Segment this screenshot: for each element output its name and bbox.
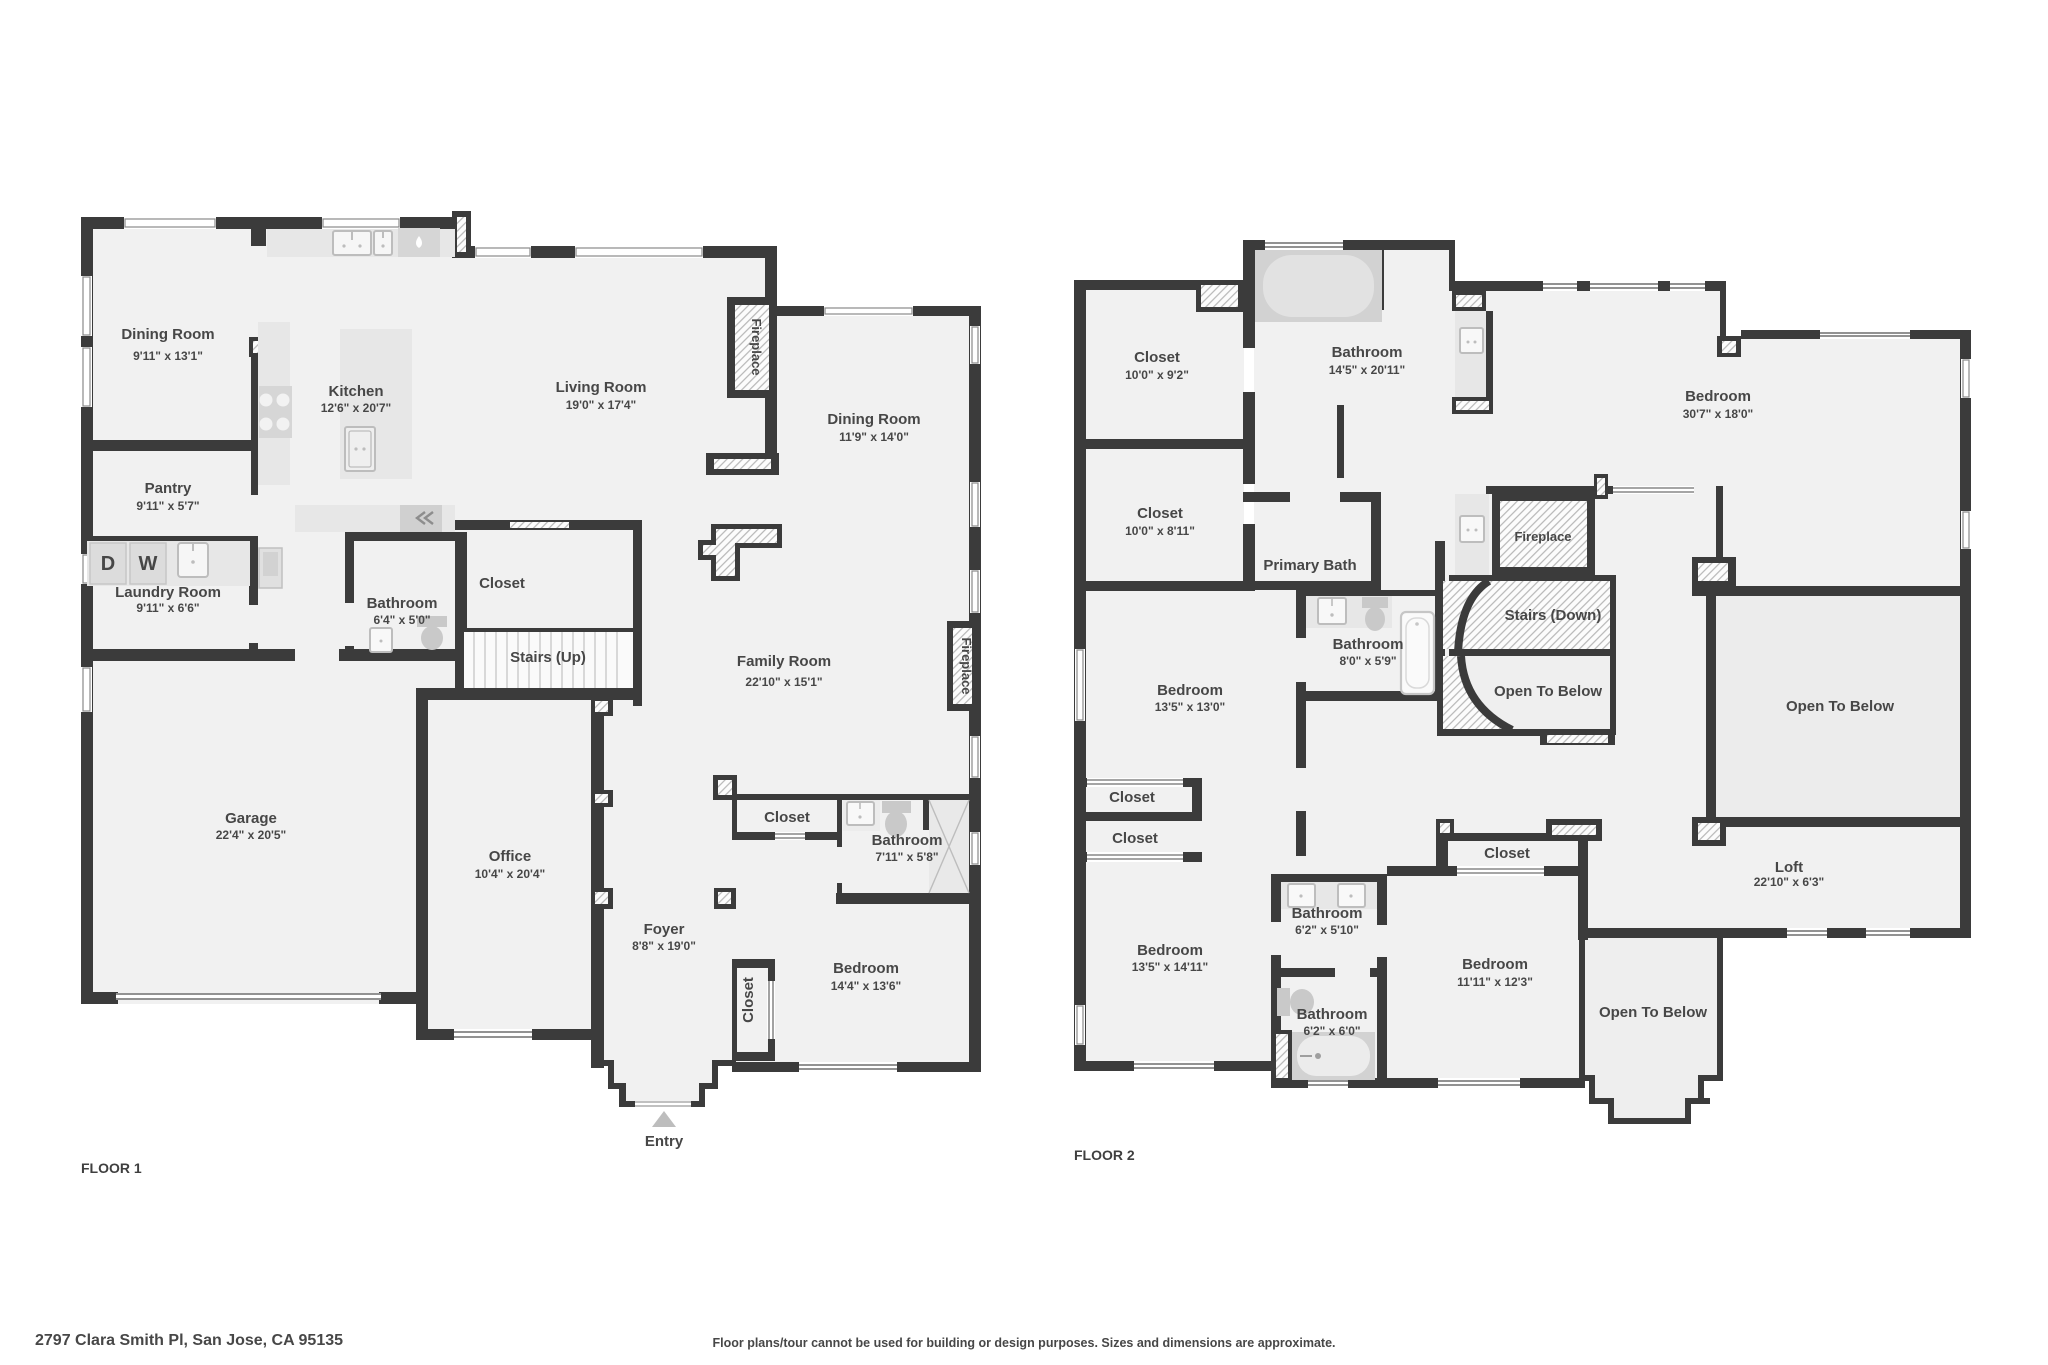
svg-text:Bathroom: Bathroom — [1292, 905, 1363, 922]
svg-text:FLOOR 1: FLOOR 1 — [81, 1160, 142, 1176]
svg-text:Closet: Closet — [1484, 845, 1530, 862]
svg-text:Family Room: Family Room — [737, 653, 831, 670]
svg-text:Laundry Room: Laundry Room — [115, 584, 221, 601]
svg-text:10'0" x 8'11": 10'0" x 8'11" — [1125, 524, 1195, 538]
svg-text:Bathroom: Bathroom — [872, 832, 943, 849]
svg-text:Floor plans/tour cannot be use: Floor plans/tour cannot be used for buil… — [712, 1336, 1335, 1350]
svg-text:Fireplace: Fireplace — [749, 318, 764, 375]
svg-text:13'5" x 13'0": 13'5" x 13'0" — [1155, 700, 1225, 714]
svg-text:Bathroom: Bathroom — [1333, 636, 1404, 653]
svg-text:Pantry: Pantry — [145, 480, 192, 497]
svg-text:10'0" x 9'2": 10'0" x 9'2" — [1125, 368, 1189, 382]
svg-text:D: D — [101, 553, 115, 575]
svg-text:Open To Below: Open To Below — [1786, 698, 1894, 715]
svg-text:22'4" x 20'5": 22'4" x 20'5" — [216, 828, 286, 842]
svg-text:Closet: Closet — [1137, 505, 1183, 522]
svg-text:7'11" x 5'8": 7'11" x 5'8" — [875, 850, 938, 864]
svg-text:Bedroom: Bedroom — [833, 960, 899, 977]
svg-text:14'4" x 13'6": 14'4" x 13'6" — [831, 979, 901, 993]
svg-text:Closet: Closet — [764, 809, 810, 826]
svg-text:Stairs (Up): Stairs (Up) — [510, 649, 586, 666]
svg-text:6'2" x 5'10": 6'2" x 5'10" — [1295, 923, 1359, 937]
svg-text:9'11" x 13'1": 9'11" x 13'1" — [133, 349, 203, 363]
svg-text:9'11" x 6'6": 9'11" x 6'6" — [136, 601, 199, 615]
svg-text:Closet: Closet — [740, 977, 757, 1023]
svg-text:Bathroom: Bathroom — [1332, 344, 1403, 361]
svg-text:Bedroom: Bedroom — [1137, 942, 1203, 959]
svg-text:Dining Room: Dining Room — [827, 411, 920, 428]
svg-text:2797 Clara Smith Pl, San Jose,: 2797 Clara Smith Pl, San Jose, CA 95135 — [35, 1332, 343, 1349]
svg-text:12'6" x 20'7": 12'6" x 20'7" — [321, 401, 391, 415]
svg-text:Garage: Garage — [225, 810, 277, 827]
svg-text:Bedroom: Bedroom — [1685, 388, 1751, 405]
svg-text:30'7" x 18'0": 30'7" x 18'0" — [1683, 407, 1753, 421]
svg-text:Foyer: Foyer — [644, 921, 685, 938]
svg-text:22'10" x 15'1": 22'10" x 15'1" — [745, 675, 822, 689]
svg-text:Closet: Closet — [1109, 789, 1155, 806]
svg-text:11'11" x 12'3": 11'11" x 12'3" — [1457, 975, 1533, 989]
svg-text:W: W — [139, 553, 158, 575]
svg-text:Kitchen: Kitchen — [328, 383, 383, 400]
svg-text:Bathroom: Bathroom — [367, 595, 438, 612]
svg-text:Closet: Closet — [1112, 830, 1158, 847]
svg-text:Entry: Entry — [645, 1133, 684, 1150]
svg-text:Open To Below: Open To Below — [1599, 1004, 1707, 1021]
svg-text:Primary Bath: Primary Bath — [1263, 557, 1356, 574]
svg-text:Office: Office — [489, 848, 532, 865]
svg-text:FLOOR 2: FLOOR 2 — [1074, 1147, 1135, 1163]
svg-text:14'5" x 20'11": 14'5" x 20'11" — [1329, 363, 1405, 377]
svg-text:Dining Room: Dining Room — [121, 326, 214, 343]
svg-text:8'8" x 19'0": 8'8" x 19'0" — [632, 939, 696, 953]
svg-text:Living Room: Living Room — [556, 379, 647, 396]
svg-text:Stairs (Down): Stairs (Down) — [1505, 607, 1602, 624]
svg-text:Bedroom: Bedroom — [1462, 956, 1528, 973]
svg-text:Open To Below: Open To Below — [1494, 683, 1602, 700]
svg-text:6'2" x 6'0": 6'2" x 6'0" — [1303, 1024, 1360, 1038]
svg-text:11'9" x 14'0": 11'9" x 14'0" — [839, 430, 909, 444]
svg-text:Fireplace: Fireplace — [959, 637, 974, 694]
svg-text:8'0" x 5'9": 8'0" x 5'9" — [1339, 654, 1396, 668]
svg-text:13'5" x 14'11": 13'5" x 14'11" — [1132, 960, 1208, 974]
svg-text:Closet: Closet — [479, 575, 525, 592]
svg-text:19'0" x 17'4": 19'0" x 17'4" — [566, 398, 636, 412]
svg-text:Loft: Loft — [1775, 859, 1803, 876]
svg-text:Bedroom: Bedroom — [1157, 682, 1223, 699]
svg-text:22'10" x 6'3": 22'10" x 6'3" — [1754, 875, 1824, 889]
svg-text:9'11" x 5'7": 9'11" x 5'7" — [136, 499, 199, 513]
svg-text:Closet: Closet — [1134, 349, 1180, 366]
svg-text:Fireplace: Fireplace — [1514, 529, 1571, 544]
svg-text:6'4" x 5'0": 6'4" x 5'0" — [373, 613, 430, 627]
svg-text:Bathroom: Bathroom — [1297, 1006, 1368, 1023]
svg-text:10'4" x 20'4": 10'4" x 20'4" — [475, 867, 545, 881]
